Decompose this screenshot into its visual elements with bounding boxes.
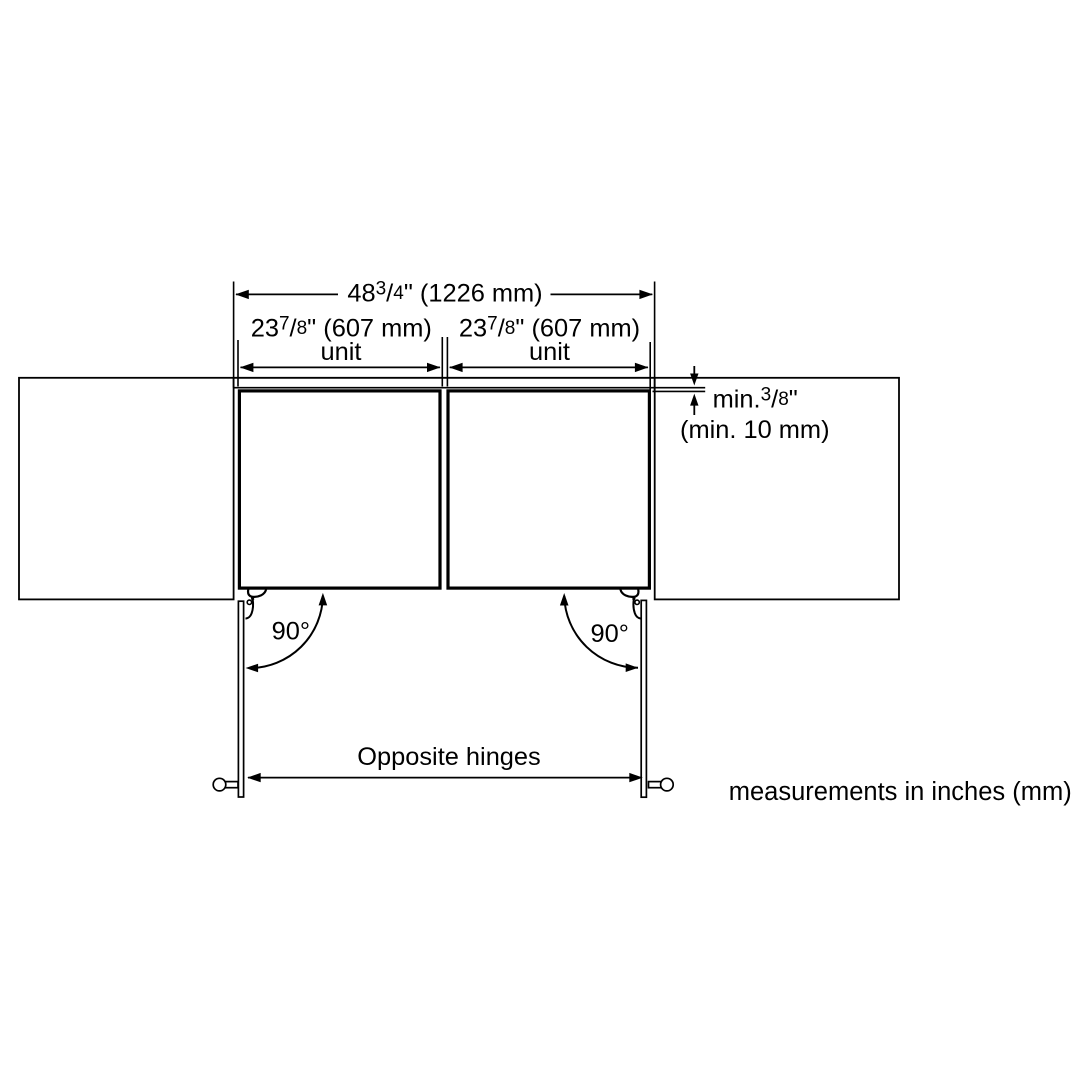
svg-text:min.3/8": min.3/8" <box>713 384 798 413</box>
svg-text:unit: unit <box>321 338 362 366</box>
svg-text:90°: 90° <box>272 617 310 645</box>
svg-text:measurements in inches (mm): measurements in inches (mm) <box>729 778 1072 806</box>
svg-text:Opposite hinges: Opposite hinges <box>357 743 541 771</box>
svg-text:(min. 10 mm): (min. 10 mm) <box>680 416 830 444</box>
svg-text:90°: 90° <box>590 620 628 648</box>
svg-text:unit: unit <box>529 338 570 366</box>
